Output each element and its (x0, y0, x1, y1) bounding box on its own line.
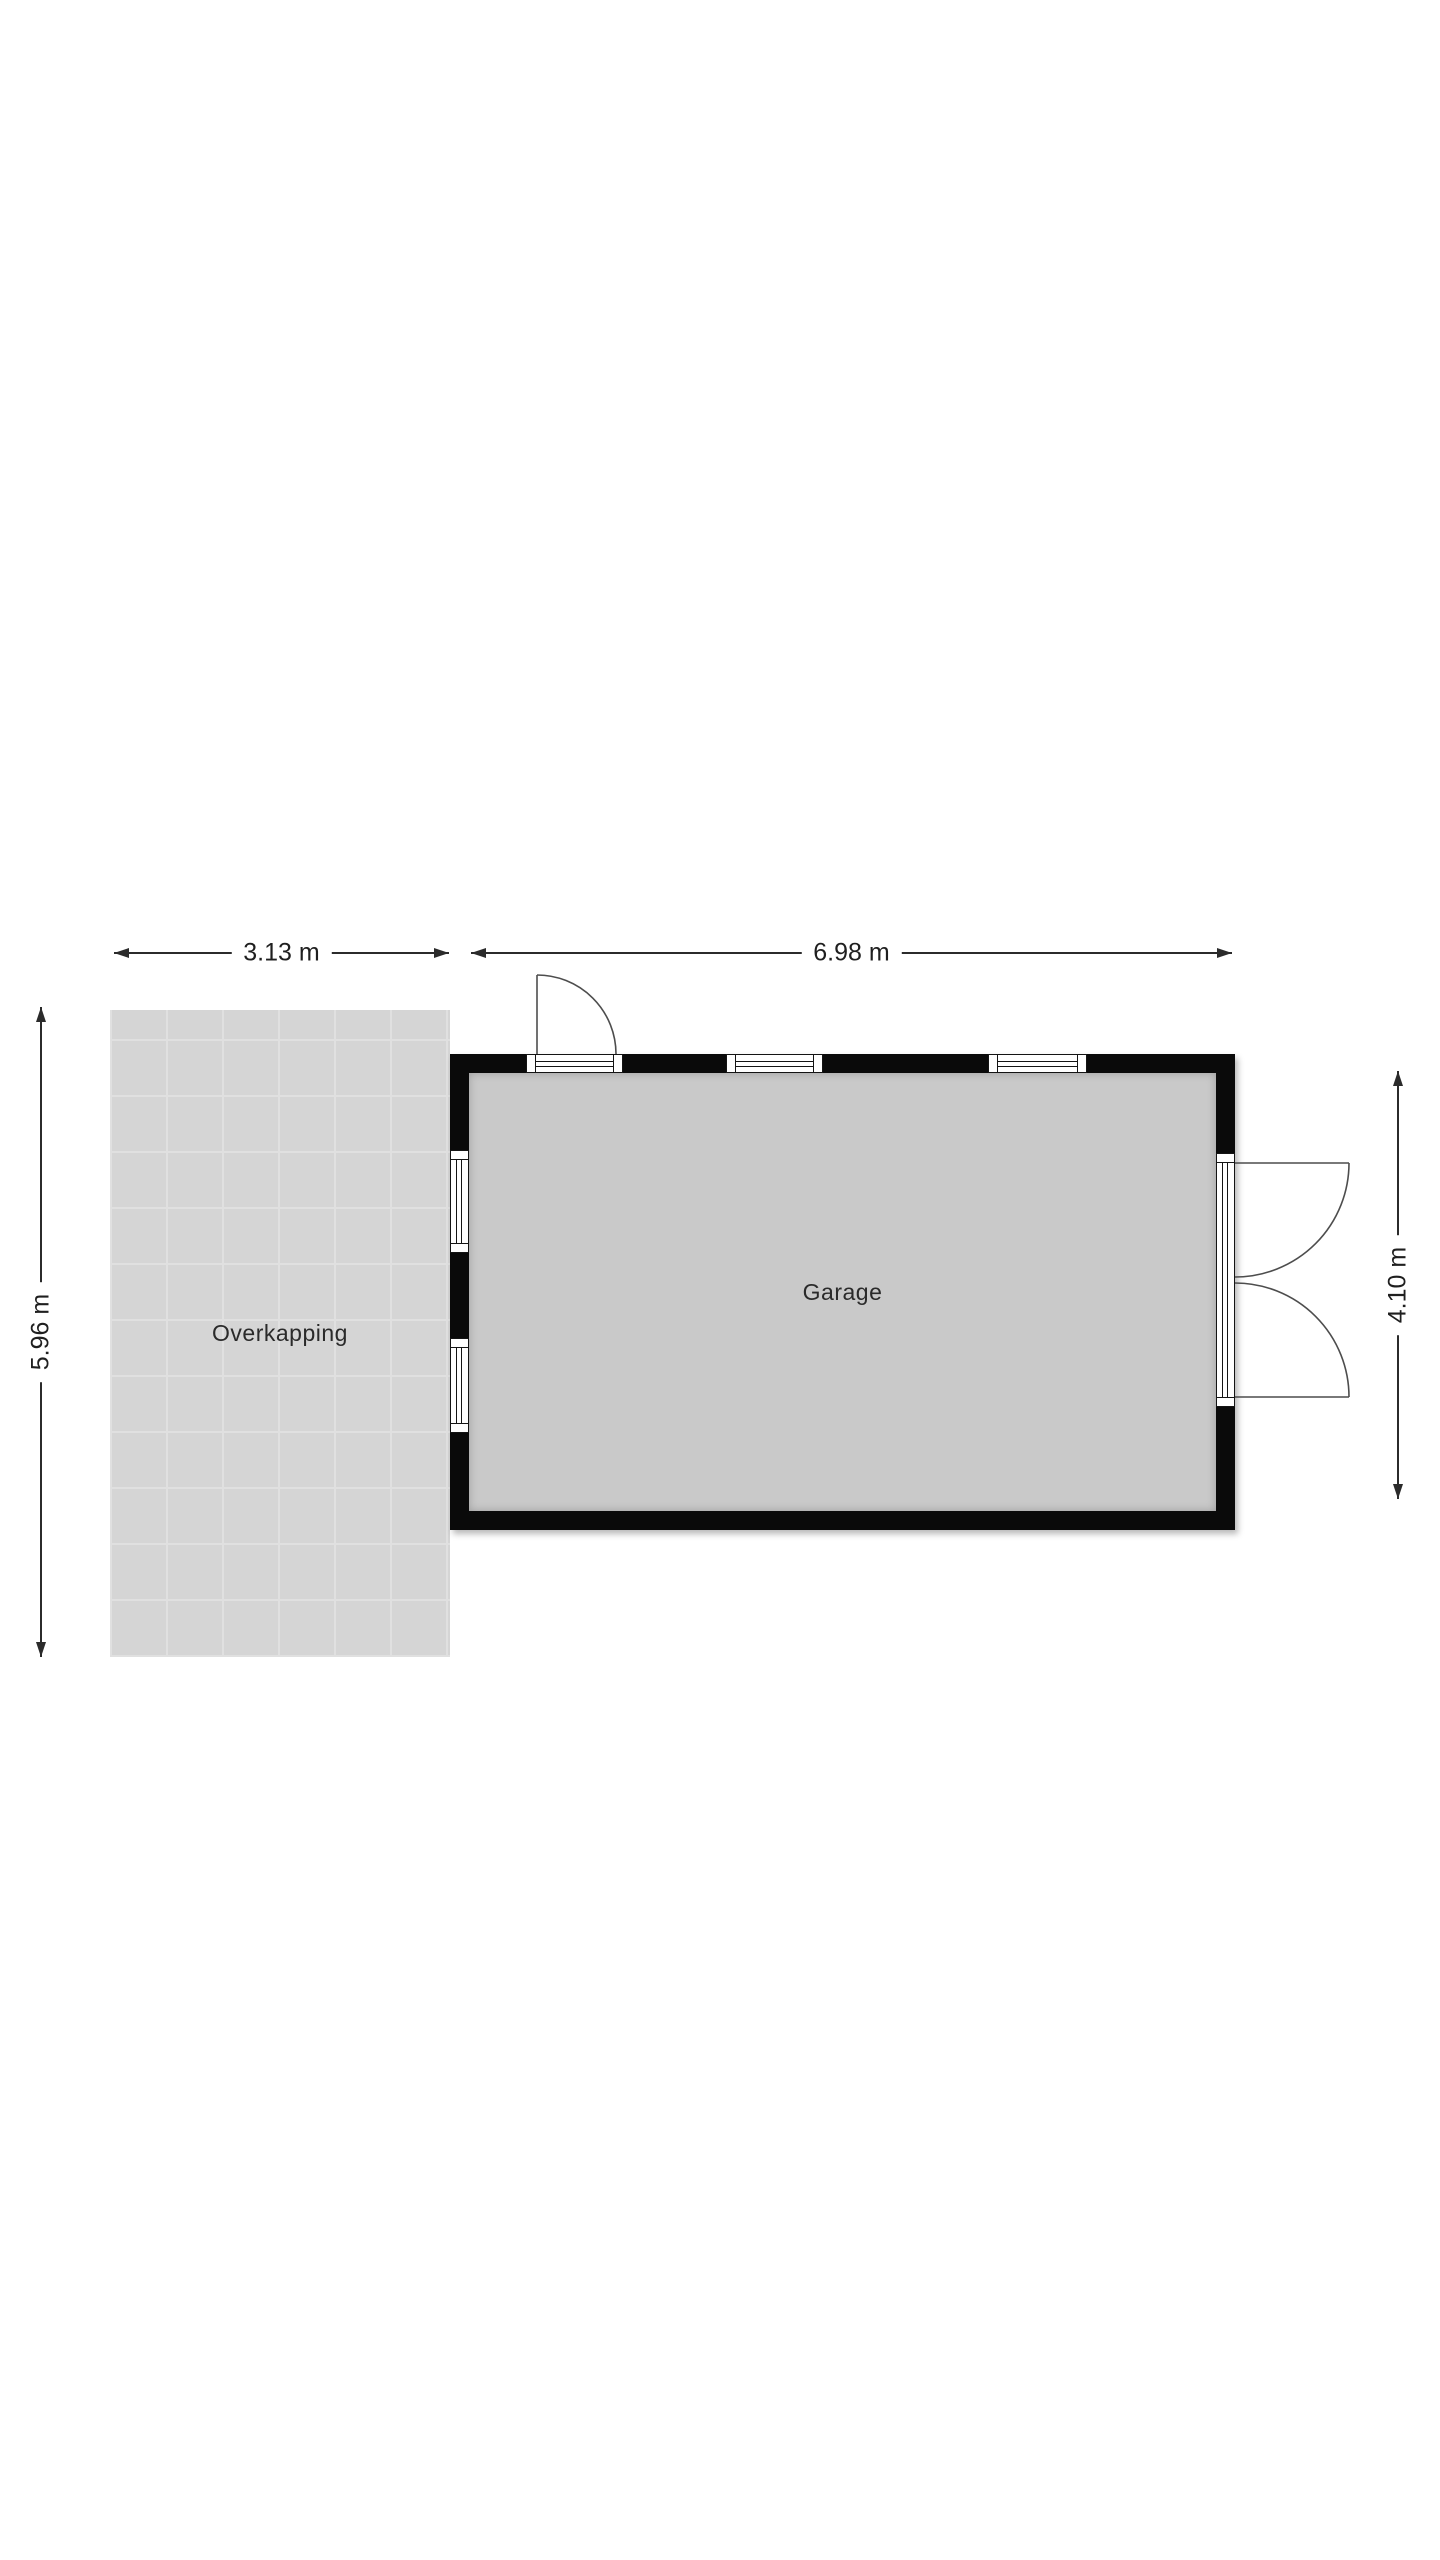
door-jamb-icon (1216, 1397, 1235, 1407)
window-jamb-icon (813, 1054, 823, 1073)
floor-plan-canvas: 3.13 m 6.98 m 5.96 m 4.10 m Overkapping … (0, 0, 1440, 2560)
window-top-1 (726, 1054, 823, 1073)
overkapping-label: Overkapping (212, 1320, 348, 1347)
door-swing-arc-icon (537, 975, 616, 1054)
window-top-2 (988, 1054, 1087, 1073)
window-jamb-icon (450, 1243, 469, 1253)
door-opening-top (526, 1054, 623, 1073)
window-jamb-icon (450, 1423, 469, 1433)
window-glass-icon (450, 1160, 469, 1243)
window-jamb-icon (450, 1150, 469, 1160)
overkapping-area: Overkapping (110, 1010, 450, 1657)
door-jamb-icon (613, 1054, 623, 1073)
dimension-label: 5.96 m (27, 1282, 55, 1382)
arrow-right-icon (434, 948, 449, 958)
dimension-overkapping-width: 3.13 m (114, 952, 449, 954)
door-swing-arc-icon (1235, 1283, 1349, 1397)
window-glass-icon (998, 1054, 1077, 1073)
door-threshold-icon (536, 1054, 613, 1073)
door-jamb-icon (526, 1054, 536, 1073)
garage-floor: Garage (469, 1073, 1216, 1511)
window-jamb-icon (988, 1054, 998, 1073)
door-opening-right (1216, 1153, 1235, 1407)
garage-label: Garage (803, 1279, 883, 1306)
window-left-2 (450, 1338, 469, 1433)
door-threshold-icon (1216, 1163, 1235, 1397)
dimension-label: 6.98 m (801, 939, 901, 967)
arrow-left-icon (114, 948, 129, 958)
window-glass-icon (736, 1054, 813, 1073)
dimension-garage-depth: 4.10 m (1397, 1071, 1399, 1499)
window-jamb-icon (450, 1338, 469, 1348)
window-glass-icon (450, 1348, 469, 1423)
door-swing-arc-icon (1235, 1163, 1349, 1277)
garage-walls: Garage (450, 1054, 1235, 1530)
door-jamb-icon (1216, 1153, 1235, 1163)
arrow-down-icon (1393, 1484, 1403, 1499)
window-jamb-icon (726, 1054, 736, 1073)
arrow-up-icon (36, 1007, 46, 1022)
arrow-up-icon (1393, 1071, 1403, 1086)
arrow-right-icon (1217, 948, 1232, 958)
dimension-garage-width: 6.98 m (471, 952, 1232, 954)
dimension-label: 4.10 m (1384, 1235, 1412, 1335)
window-jamb-icon (1077, 1054, 1087, 1073)
arrow-down-icon (36, 1642, 46, 1657)
arrow-left-icon (471, 948, 486, 958)
dimension-overkapping-depth: 5.96 m (40, 1007, 42, 1657)
dimension-label: 3.13 m (231, 939, 331, 967)
window-left-1 (450, 1150, 469, 1253)
